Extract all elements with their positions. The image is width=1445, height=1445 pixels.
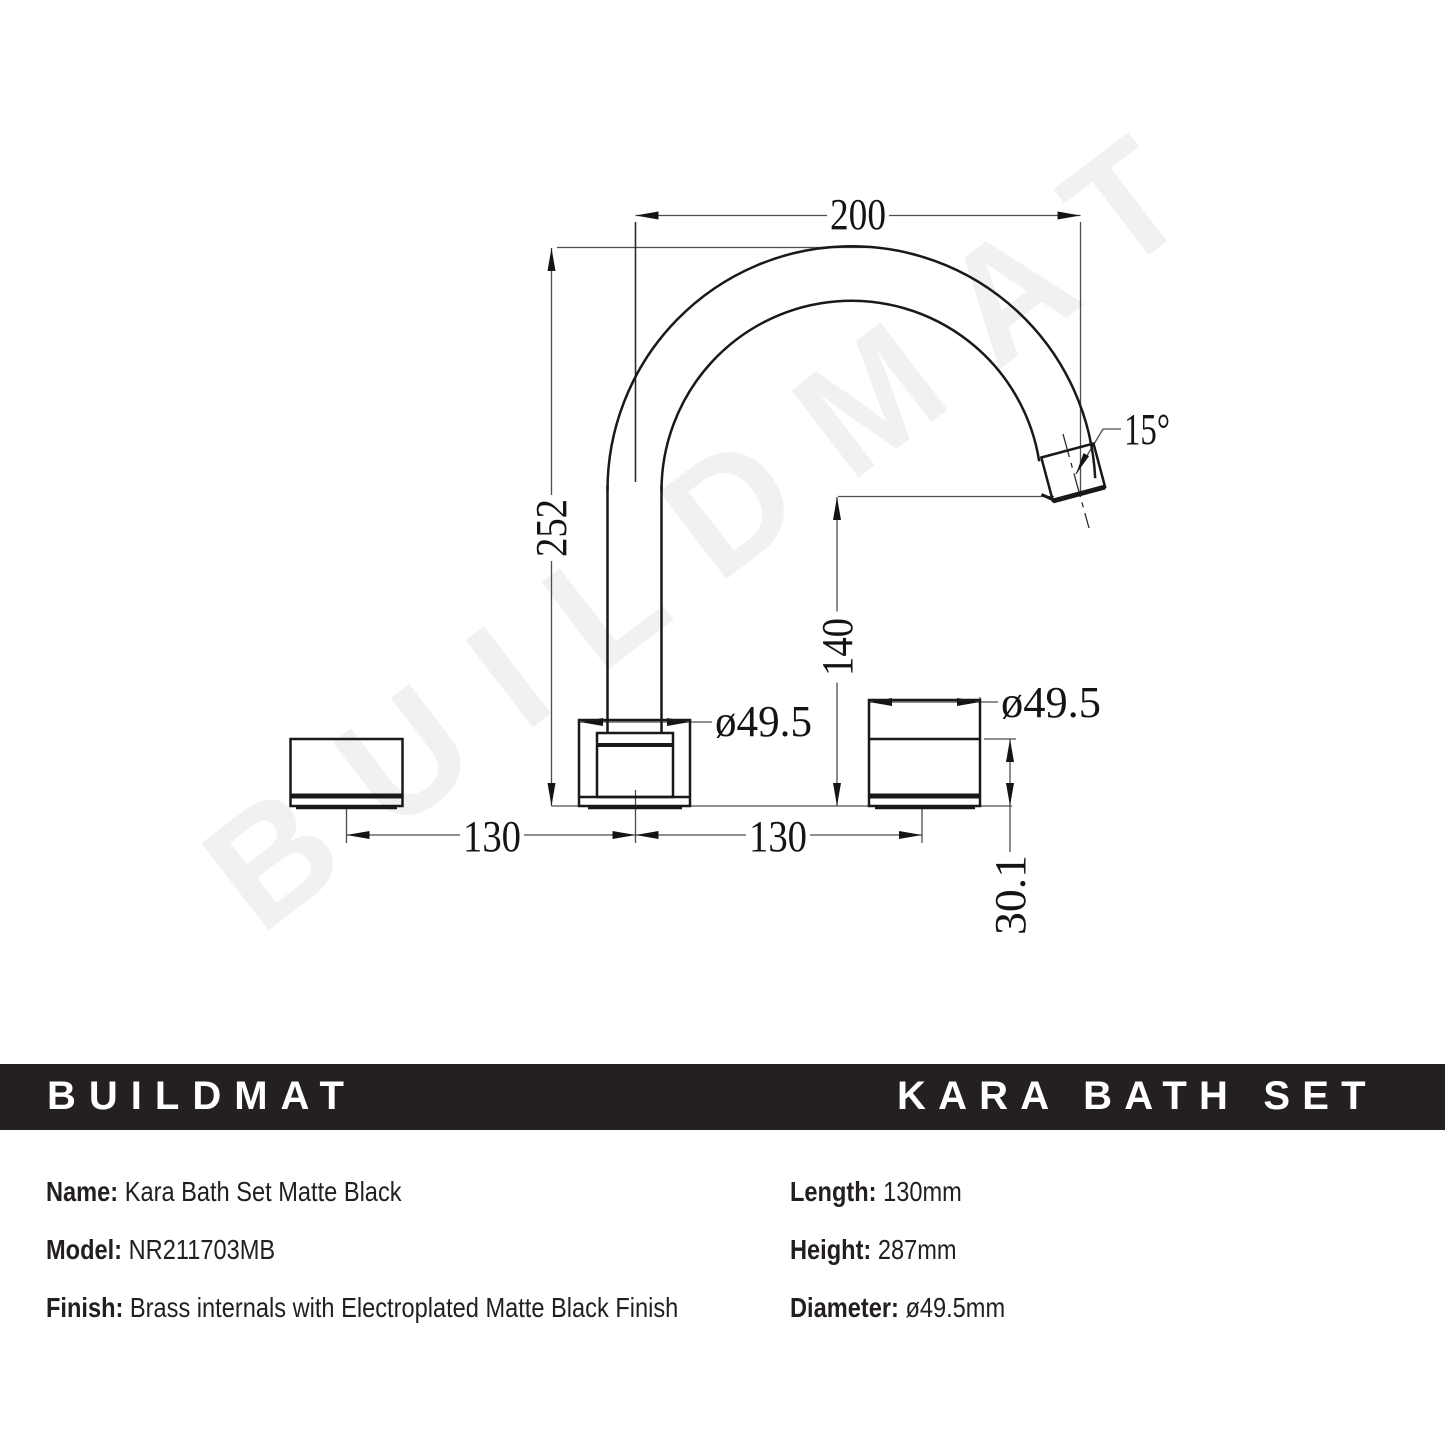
svg-text:30.1: 30.1: [986, 855, 1035, 935]
svg-text:252: 252: [527, 499, 576, 557]
svg-text:15°: 15°: [1124, 405, 1170, 454]
svg-text:ø49.5: ø49.5: [715, 697, 812, 746]
svg-text:130: 130: [749, 812, 807, 861]
svg-text:130: 130: [463, 812, 521, 861]
svg-text:ø49.5: ø49.5: [1001, 678, 1101, 727]
svg-text:BUILDMAT: BUILDMAT: [172, 72, 1258, 964]
svg-text:200: 200: [830, 190, 886, 239]
svg-text:140: 140: [813, 618, 862, 676]
